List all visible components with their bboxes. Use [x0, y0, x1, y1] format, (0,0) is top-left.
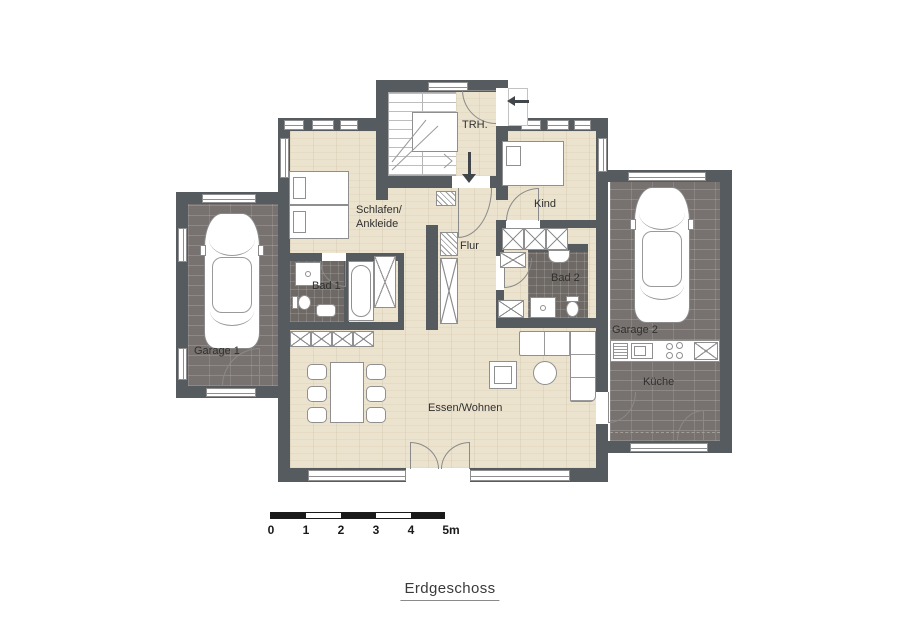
- chair: [307, 364, 327, 380]
- shower: [530, 297, 556, 318]
- sideboard: [290, 331, 311, 347]
- room-label-bad1: Bad 1: [312, 280, 341, 293]
- door-opening: [322, 253, 346, 261]
- stove-burner: [666, 343, 673, 350]
- door-opening: [506, 220, 540, 228]
- wardrobe: [498, 300, 524, 318]
- arrow-down-icon: [462, 174, 476, 183]
- window: [308, 470, 406, 481]
- wall: [720, 170, 732, 453]
- wardrobe: [500, 252, 526, 268]
- window: [280, 138, 289, 178]
- scale-bar: [270, 512, 445, 519]
- wall: [496, 318, 596, 328]
- sideboard: [332, 331, 353, 347]
- dishwasher: [613, 343, 628, 359]
- car-mirror: [688, 219, 694, 230]
- door-leaf: [469, 442, 470, 469]
- toilet: [298, 295, 311, 310]
- room-label-garage1: Garage 1: [194, 345, 240, 358]
- garage-door: [206, 388, 256, 397]
- toilet: [566, 301, 579, 317]
- window: [284, 120, 304, 130]
- armchair-seat: [494, 366, 512, 384]
- window: [312, 120, 334, 130]
- sink: [316, 304, 336, 317]
- room-label-kind: Kind: [534, 198, 556, 211]
- door-opening: [596, 392, 608, 424]
- wall: [290, 322, 400, 330]
- car-mirror: [258, 245, 264, 256]
- window: [470, 470, 570, 481]
- page-title: Erdgeschoss: [400, 580, 499, 601]
- scale-tick-label: 1: [303, 523, 310, 537]
- chair: [366, 364, 386, 380]
- chair: [307, 386, 327, 402]
- room-label-flur: Flur: [460, 240, 479, 253]
- car: [634, 187, 690, 323]
- room-label-garage2: Garage 2: [612, 324, 658, 337]
- room-label-kueche: Küche: [643, 376, 674, 389]
- window: [547, 120, 569, 130]
- wardrobe: [524, 228, 546, 250]
- door-leaf: [345, 261, 346, 287]
- door-leaf: [410, 442, 411, 469]
- entry-porch: [508, 88, 528, 126]
- room-label-schlafen: Schlafen/: [356, 204, 402, 217]
- stair-direction-lines: [388, 92, 458, 176]
- kitchen-sink-basin: [634, 346, 646, 356]
- door-leaf: [462, 90, 496, 91]
- threshold-dashed-line: [610, 432, 720, 433]
- scale-tick-label: 0: [268, 523, 275, 537]
- wardrobe: [374, 256, 396, 308]
- window: [574, 120, 591, 130]
- room-label-trh: TRH.: [462, 119, 488, 132]
- garage-door: [628, 172, 706, 181]
- window: [340, 120, 358, 130]
- door-opening: [496, 88, 508, 126]
- door-opening: [406, 468, 470, 482]
- scale-tick-label: 2: [338, 523, 345, 537]
- stove-burner: [666, 352, 673, 359]
- car-mirror: [630, 219, 636, 230]
- wardrobe: [502, 228, 524, 250]
- room-label-wohnen: Essen/Wohnen: [428, 402, 502, 415]
- chair: [366, 386, 386, 402]
- window: [598, 138, 607, 172]
- sofa: [570, 331, 596, 402]
- arrow-down-icon: [468, 152, 471, 174]
- car-roof: [212, 257, 252, 313]
- scale-tick-label: 5m: [442, 523, 459, 537]
- chair: [366, 407, 386, 423]
- cabinet: [440, 232, 458, 256]
- cabinet: [436, 191, 456, 206]
- arrow-left-icon: [515, 100, 529, 103]
- kitchen-cabinet: [694, 342, 718, 360]
- door-leaf: [458, 188, 459, 238]
- arrow-left-icon: [507, 96, 515, 106]
- room-label-bad2: Bad 2: [551, 272, 580, 285]
- bathtub-basin: [351, 265, 371, 317]
- door-leaf: [608, 392, 609, 423]
- sideboard: [353, 331, 374, 347]
- pillow: [293, 177, 306, 199]
- sideboard: [311, 331, 332, 347]
- window: [202, 194, 256, 203]
- dining-table: [330, 362, 364, 423]
- floor-plan: TRH. Schlafen/ Ankleide Kind Flur Bad 1 …: [0, 0, 900, 636]
- wardrobe: [440, 258, 458, 324]
- scale-tick-label: 4: [408, 523, 415, 537]
- car-roof: [642, 231, 682, 287]
- door-leaf: [259, 348, 260, 386]
- stove-burner: [676, 352, 683, 359]
- scale-tick-label: 3: [373, 523, 380, 537]
- coffee-table: [533, 361, 557, 385]
- stove-burner: [676, 342, 683, 349]
- wall: [426, 225, 438, 330]
- chair: [307, 407, 327, 423]
- pillow: [293, 211, 306, 233]
- window: [630, 443, 708, 452]
- room-label-ankleide: Ankleide: [356, 218, 398, 231]
- wall: [398, 253, 404, 330]
- window: [178, 348, 187, 380]
- sink: [548, 250, 570, 263]
- window: [178, 228, 187, 262]
- car-mirror: [200, 245, 206, 256]
- wardrobe: [546, 228, 568, 250]
- car: [204, 213, 260, 349]
- pillow: [506, 146, 521, 166]
- door-leaf: [703, 410, 704, 441]
